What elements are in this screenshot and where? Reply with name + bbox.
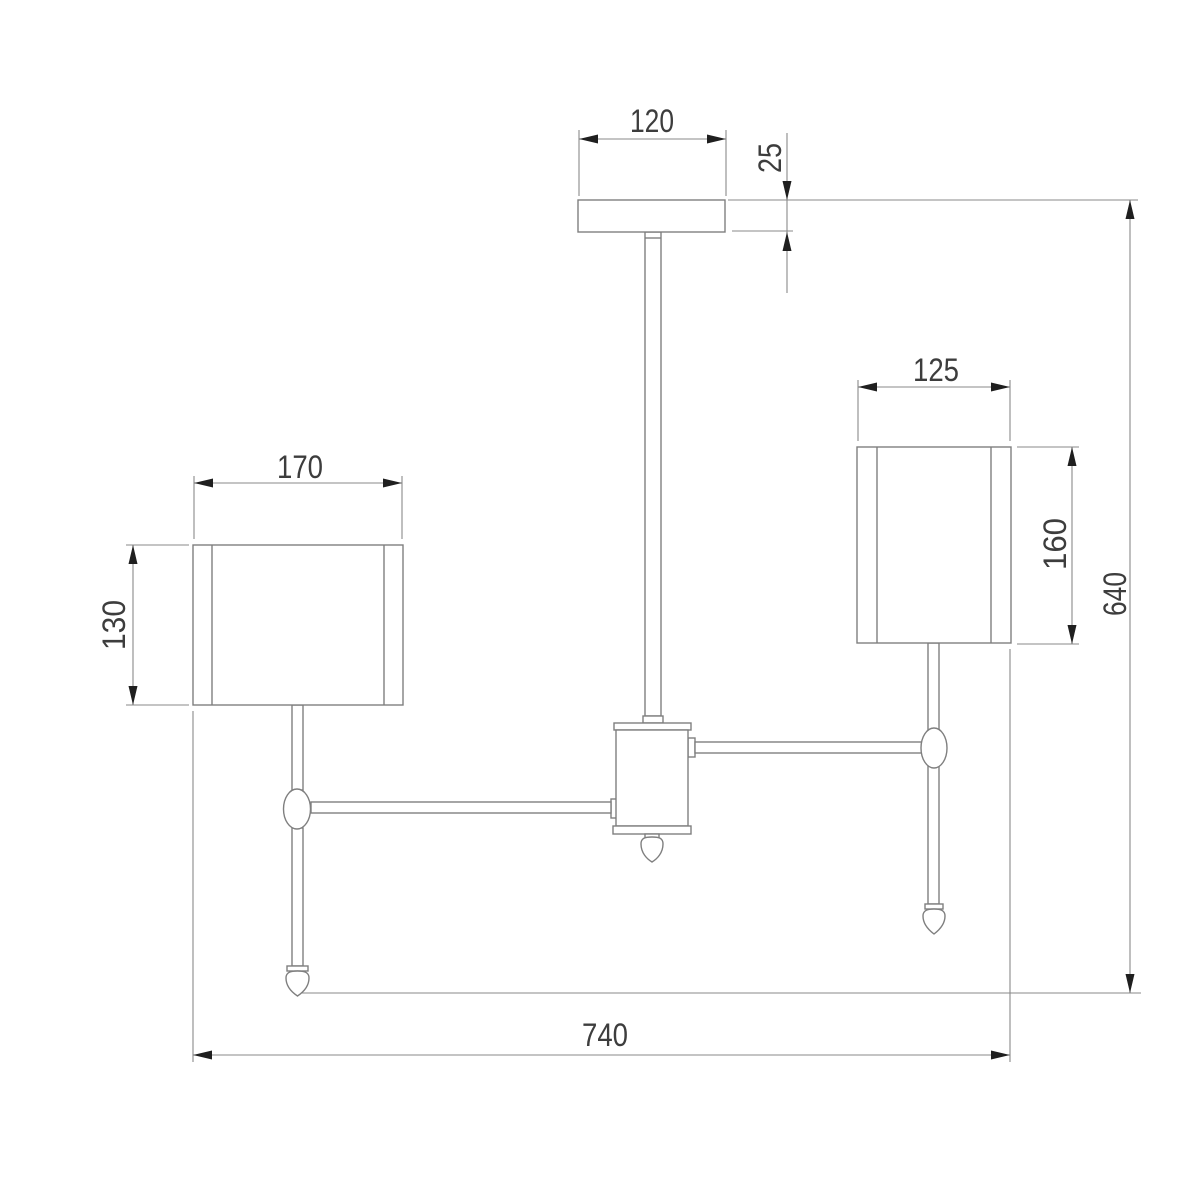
fixture: [193, 200, 1011, 996]
arrowhead-down: [1068, 625, 1077, 644]
dim-label-canopy-thickness: 25: [752, 143, 788, 173]
dim-overall-height: 640: [302, 200, 1141, 993]
arrowhead-left: [194, 479, 213, 488]
dim-right-shade-width: 125: [858, 352, 1010, 441]
arrowhead-up: [1068, 447, 1077, 466]
hub-bottom-cap: [613, 826, 691, 834]
arrowhead-left: [193, 1051, 212, 1060]
arrowhead-down: [1126, 974, 1135, 993]
dim-overall-width: 740: [193, 649, 1010, 1062]
dim-label-left-shade-height: 130: [96, 600, 132, 650]
arrowhead-up: [1126, 200, 1135, 219]
left-finial-collar: [287, 966, 308, 971]
right-lamp-rod-lower: [928, 766, 939, 904]
dim-label-overall-width: 740: [582, 1017, 628, 1053]
right-shade: [857, 447, 1011, 643]
hub-top-collar: [643, 716, 663, 723]
hub-body: [616, 730, 688, 826]
arrowhead-right: [991, 383, 1010, 392]
right-arm: [695, 742, 922, 753]
arrowhead-down: [783, 181, 792, 200]
left-lamp-rod-lower: [292, 828, 303, 966]
arrowhead-left: [579, 135, 598, 144]
arrowhead-right: [707, 135, 726, 144]
left-finial-drop: [286, 971, 309, 996]
dim-label-right-shade-width: 125: [913, 352, 959, 388]
chandelier-technical-drawing: 120 25 170 130 125: [0, 0, 1200, 1200]
right-ball-joint: [921, 728, 947, 768]
dim-left-shade-height: 130: [96, 545, 189, 705]
hub-top-cap: [614, 723, 691, 730]
drawing-canvas: 120 25 170 130 125: [0, 0, 1200, 1200]
right-lamp-rod-upper: [928, 643, 939, 730]
dim-right-shade-height: 160: [1017, 447, 1079, 644]
arrowhead-up: [783, 232, 792, 251]
arrowhead-right: [383, 479, 402, 488]
dim-label-right-shade-height: 160: [1037, 518, 1073, 570]
right-arm-hub-joint: [688, 738, 695, 757]
dim-canopy-width: 120: [579, 103, 726, 196]
arrowhead-down: [129, 686, 138, 705]
right-finial-drop: [923, 909, 945, 934]
left-arm: [311, 802, 611, 813]
arrowhead-left: [858, 383, 877, 392]
dim-label-overall-height: 640: [1097, 572, 1133, 616]
arrowhead-right: [991, 1051, 1010, 1060]
left-lamp-rod-upper: [292, 705, 303, 790]
dim-canopy-thickness: 25: [732, 133, 793, 293]
dim-label-canopy-width: 120: [630, 103, 674, 139]
right-finial-collar: [925, 904, 943, 909]
arrowhead-up: [129, 545, 138, 564]
dim-left-shade-width: 170: [194, 449, 402, 539]
dim-label-left-shade-width: 170: [277, 449, 323, 485]
left-ball-joint: [284, 789, 311, 829]
ceiling-canopy: [578, 200, 725, 232]
central-stem: [645, 232, 661, 716]
hub-finial-drop: [641, 837, 663, 862]
left-shade: [193, 545, 403, 705]
